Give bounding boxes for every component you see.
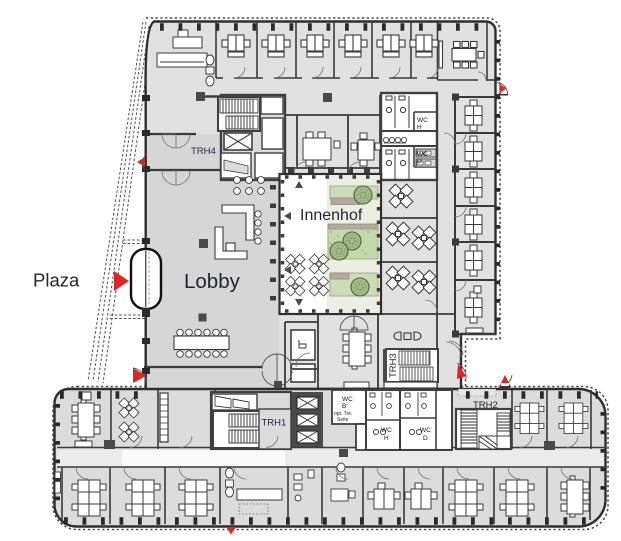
svg-text:D: D xyxy=(417,158,422,165)
svg-text:Plaza: Plaza xyxy=(33,270,80,291)
svg-text:WC: WC xyxy=(342,396,353,403)
svg-text:Seite: Seite xyxy=(337,417,349,423)
svg-text:TRH2: TRH2 xyxy=(473,400,498,411)
svg-text:Innenhof: Innenhof xyxy=(300,207,363,224)
svg-text:H: H xyxy=(417,124,422,131)
svg-text:D: D xyxy=(423,435,428,442)
svg-text:TRH1: TRH1 xyxy=(262,418,287,429)
svg-text:WC: WC xyxy=(417,151,428,158)
svg-text:TRH4: TRH4 xyxy=(191,146,216,157)
svg-text:WC: WC xyxy=(417,117,428,124)
svg-text:WC: WC xyxy=(381,427,392,434)
svg-text:B': B' xyxy=(342,403,348,410)
svg-text:WC: WC xyxy=(420,427,431,434)
svg-text:H: H xyxy=(384,435,389,442)
svg-text:Lobby: Lobby xyxy=(184,270,241,293)
svg-text:TRH3: TRH3 xyxy=(388,353,399,378)
